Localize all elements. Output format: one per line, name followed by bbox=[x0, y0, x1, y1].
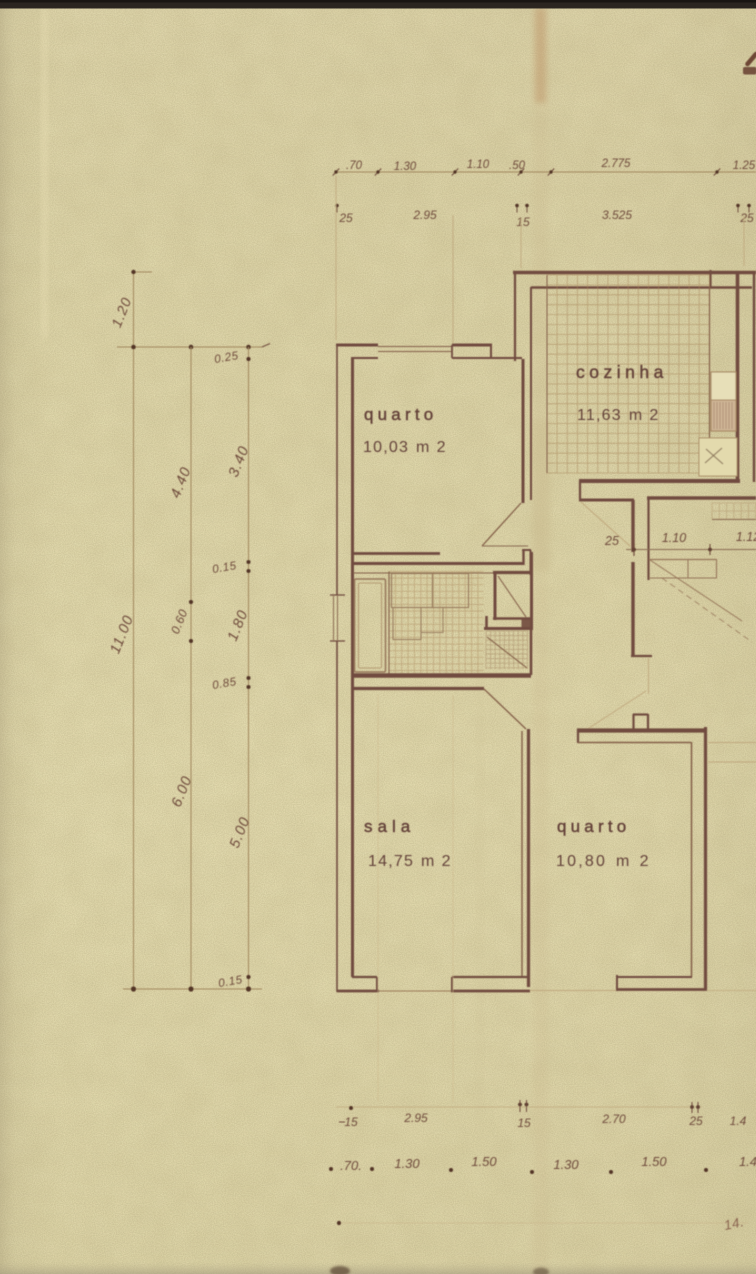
svg-text:.70: .70 bbox=[346, 160, 363, 172]
svg-text:1.50: 1.50 bbox=[641, 1154, 667, 1169]
svg-text:1.10: 1.10 bbox=[662, 531, 686, 545]
svg-text:25: 25 bbox=[338, 211, 353, 225]
svg-text:quarto: quarto bbox=[364, 405, 437, 424]
svg-text:3.525: 3.525 bbox=[602, 208, 632, 222]
svg-text:25: 25 bbox=[604, 534, 619, 548]
svg-text:2.70: 2.70 bbox=[601, 1112, 626, 1126]
svg-text:15: 15 bbox=[516, 215, 530, 229]
svg-text:2.95: 2.95 bbox=[403, 1111, 428, 1125]
svg-text:.70.: .70. bbox=[340, 1158, 362, 1173]
svg-text:1.25: 1.25 bbox=[733, 160, 756, 172]
svg-text:.50: .50 bbox=[509, 160, 526, 172]
svg-text:1.4: 1.4 bbox=[730, 1114, 747, 1128]
svg-text:1.30: 1.30 bbox=[394, 161, 417, 173]
svg-text:25: 25 bbox=[688, 1114, 703, 1128]
svg-text:25: 25 bbox=[739, 211, 754, 225]
svg-text:1.10: 1.10 bbox=[467, 159, 490, 171]
svg-text:2.95: 2.95 bbox=[412, 208, 437, 222]
svg-text:1.12: 1.12 bbox=[736, 530, 756, 544]
svg-text:1.30: 1.30 bbox=[553, 1157, 579, 1172]
svg-text:1.50: 1.50 bbox=[471, 1154, 497, 1169]
svg-text:1.4: 1.4 bbox=[739, 1154, 756, 1169]
svg-text:sala: sala bbox=[364, 817, 415, 836]
svg-text:2.775: 2.775 bbox=[601, 158, 631, 170]
svg-text:cozinha: cozinha bbox=[576, 362, 668, 382]
svg-text:1.30: 1.30 bbox=[394, 1156, 420, 1171]
svg-text:15: 15 bbox=[344, 1115, 358, 1129]
svg-text:quarto: quarto bbox=[557, 817, 630, 836]
svg-text:15: 15 bbox=[517, 1116, 531, 1130]
